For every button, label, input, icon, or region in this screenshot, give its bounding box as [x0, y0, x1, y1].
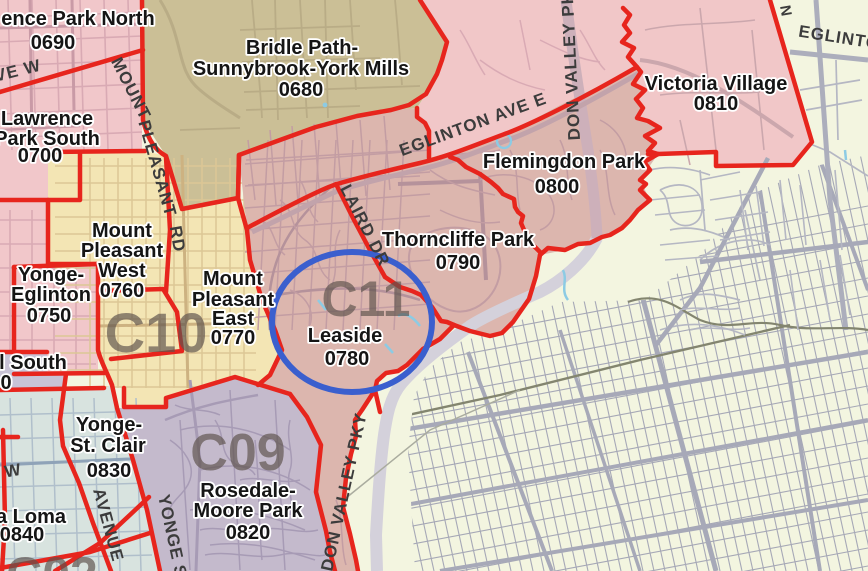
- svg-text:ence Park North: ence Park North: [1, 8, 154, 30]
- svg-text:C11: C11: [322, 271, 411, 327]
- svg-text:0760: 0760: [100, 280, 145, 302]
- svg-text:Rosedale-: Rosedale-: [200, 480, 296, 502]
- svg-text:Leaside: Leaside: [308, 325, 382, 347]
- svg-text:0750: 0750: [27, 305, 72, 327]
- svg-text:Mount: Mount: [92, 220, 152, 242]
- svg-text:0770: 0770: [211, 327, 256, 349]
- svg-text:C09: C09: [190, 424, 285, 482]
- svg-text:Sunnybrook-York Mills: Sunnybrook-York Mills: [193, 58, 409, 80]
- svg-text:St. Clair: St. Clair: [70, 435, 146, 457]
- svg-text:Eglinton: Eglinton: [11, 284, 91, 306]
- svg-text:0690: 0690: [31, 32, 76, 54]
- svg-text:W: W: [3, 460, 23, 482]
- svg-text:0800: 0800: [535, 176, 580, 198]
- svg-text:Flemingdon Park: Flemingdon Park: [483, 151, 646, 173]
- svg-text:Bridle Path-: Bridle Path-: [246, 37, 358, 59]
- svg-text:0840: 0840: [0, 524, 44, 546]
- svg-text:0680: 0680: [279, 79, 324, 101]
- svg-text:0780: 0780: [325, 348, 370, 370]
- svg-text:Mount: Mount: [203, 268, 263, 290]
- svg-text:Pleasant: Pleasant: [81, 240, 164, 262]
- svg-text:0830: 0830: [87, 460, 132, 482]
- svg-text:C02: C02: [6, 547, 98, 571]
- svg-text:l South: l South: [0, 352, 67, 374]
- svg-text:0820: 0820: [226, 522, 271, 544]
- svg-text:0: 0: [0, 372, 11, 394]
- svg-text:Thorncliffe Park: Thorncliffe Park: [382, 229, 535, 251]
- svg-text:0810: 0810: [694, 93, 739, 115]
- svg-text:Yonge-: Yonge-: [76, 414, 142, 436]
- svg-text:Victoria Village: Victoria Village: [645, 73, 788, 95]
- svg-text:Lawrence: Lawrence: [1, 108, 93, 130]
- svg-text:West: West: [98, 260, 146, 282]
- svg-text:0790: 0790: [436, 252, 481, 274]
- svg-text:0700: 0700: [18, 145, 63, 167]
- svg-text:Moore Park: Moore Park: [194, 500, 304, 522]
- svg-text:Yonge-: Yonge-: [18, 264, 84, 286]
